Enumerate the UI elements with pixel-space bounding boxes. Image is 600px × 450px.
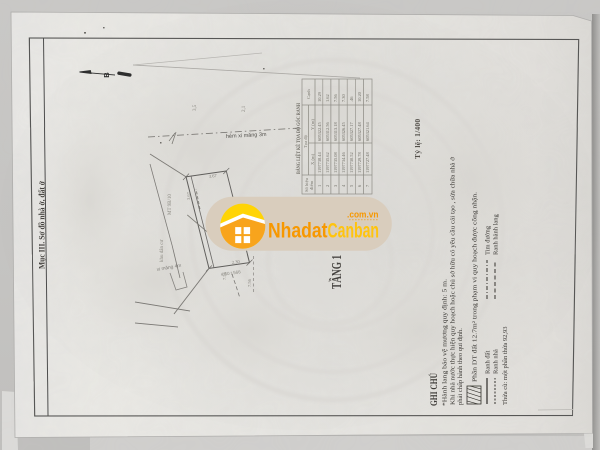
svg-text:.com.vn: .com.vn: [347, 210, 379, 220]
svg-text:3,5: 3,5: [193, 104, 198, 111]
svg-text:X (m): X (m): [310, 153, 315, 165]
svg-text:Ranh nhà: Ranh nhà: [493, 349, 500, 374]
svg-text:.46: .46: [349, 96, 354, 102]
svg-text:Cạnh: Cạnh: [306, 89, 311, 99]
svg-text:1197727.48: 1197727.48: [365, 152, 370, 173]
svg-text:phải chấp hành theo qui định.: phải chấp hành theo qui định.: [457, 328, 464, 405]
svg-text:NhadatCanban: NhadatCanban: [268, 219, 379, 243]
svg-text:B: B: [102, 72, 111, 78]
svg-text:Mục III. Sơ đồ nhà ở, đất ở: Mục III. Sơ đồ nhà ở, đất ở: [38, 181, 47, 269]
svg-text:khu dân cư: khu dân cư: [160, 240, 165, 262]
svg-text:10.20: 10.20: [357, 91, 362, 102]
svg-text:Tỷ lệ: 1/400: Tỷ lệ: 1/400: [413, 119, 422, 159]
svg-text:7.58: 7.58: [365, 94, 370, 102]
svg-text:BẢNG LIỆT KÊ TỌA ĐỘ GÓC RANH: BẢNG LIỆT KÊ TỌA ĐỘ GÓC RANH: [294, 102, 302, 174]
svg-text:10.29: 10.29: [317, 91, 322, 102]
svg-text:7.56: 7.56: [333, 94, 338, 102]
svg-text:605321.64: 605321.64: [365, 122, 370, 141]
svg-text:605326.45: 605326.45: [341, 122, 346, 141]
svg-text:605313.18: 605313.18: [333, 122, 338, 141]
svg-text:TẦNG 1: TẦNG 1: [329, 255, 344, 289]
svg-text:1.62: 1.62: [325, 94, 330, 102]
svg-text:GHI CHÚ: GHI CHÚ: [429, 373, 439, 406]
svg-text:Khi nhà nước thực hiện quy hoạ: Khi nhà nước thực hiện quy hoạch hoặc ch…: [450, 156, 457, 405]
svg-text:7.30: 7.30: [341, 94, 346, 102]
svg-text:Ranh đất: Ranh đất: [485, 351, 492, 374]
svg-text:Y (m): Y (m): [310, 119, 315, 130]
svg-text:3.67: 3.67: [186, 191, 191, 200]
svg-text:Tim đường: Tim đường: [485, 225, 492, 255]
svg-text:605312.56: 605312.56: [325, 122, 330, 141]
svg-text:Thửa cũ: một phần thửa 92,93: Thửa cũ: một phần thửa 92,93: [502, 326, 509, 405]
svg-text:1: 1: [317, 185, 322, 187]
svg-text:2: 2: [325, 185, 330, 187]
svg-text:1197735.08: 1197735.08: [333, 152, 338, 173]
svg-text:1197738.44: 1197738.44: [317, 152, 322, 173]
svg-text:605322.45: 605322.45: [317, 122, 322, 141]
svg-text:1197729.78: 1197729.78: [357, 152, 362, 173]
svg-text:MT 9B/10: MT 9B/10: [168, 194, 173, 215]
svg-text:Ranh hành lang: Ranh hành lang: [493, 213, 500, 255]
svg-text:1197730.52: 1197730.52: [349, 152, 354, 173]
svg-text:điểm: điểm: [309, 180, 314, 190]
svg-text:1197735.62: 1197735.62: [325, 152, 330, 173]
svg-text:1197734.46: 1197734.46: [341, 152, 346, 173]
svg-text:605327.17: 605327.17: [349, 122, 354, 141]
svg-text:7.56: 7.56: [247, 278, 252, 287]
svg-text:2,1: 2,1: [242, 105, 247, 112]
svg-text:605327.48: 605327.48: [357, 122, 362, 141]
svg-text:Tọa độ: Tọa độ: [303, 134, 308, 148]
svg-text:*Hành lang bảo vệ mương quy đị: *Hành lang bảo vệ mương quy định: 5 m.: [442, 279, 449, 406]
svg-text:Phần DT đất 12.7m² trong phạm: Phần DT đất 12.7m² trong phạm vi quy hoạ…: [472, 192, 479, 382]
